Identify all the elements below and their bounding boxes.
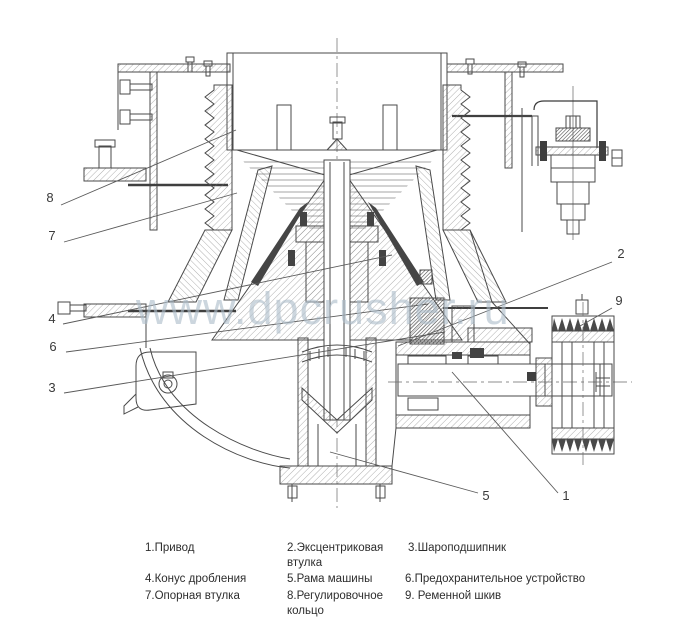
figure: 123456789 www.dpcrusher.ru 1.Привод2.Экс…: [0, 0, 692, 635]
legend-item: 7.Опорная втулка: [145, 589, 285, 604]
legend-item: 3.Шароподшипник: [408, 541, 578, 556]
legend-item: 9. Ременной шкив: [405, 589, 575, 604]
legend-item: 1.Привод: [145, 541, 275, 556]
legend-item: 2.Эксцентриковая втулка: [287, 541, 399, 571]
legend-item: 5.Рама машины: [287, 572, 407, 587]
legend-item: 6.Предохранительное устройство: [405, 572, 645, 587]
parts-legend: 1.Привод2.Эксцентриковая втулка3.Шаропод…: [0, 0, 692, 635]
legend-item: 8.Регулировочное кольцо: [287, 589, 399, 619]
legend-item: 4.Конус дробления: [145, 572, 285, 587]
